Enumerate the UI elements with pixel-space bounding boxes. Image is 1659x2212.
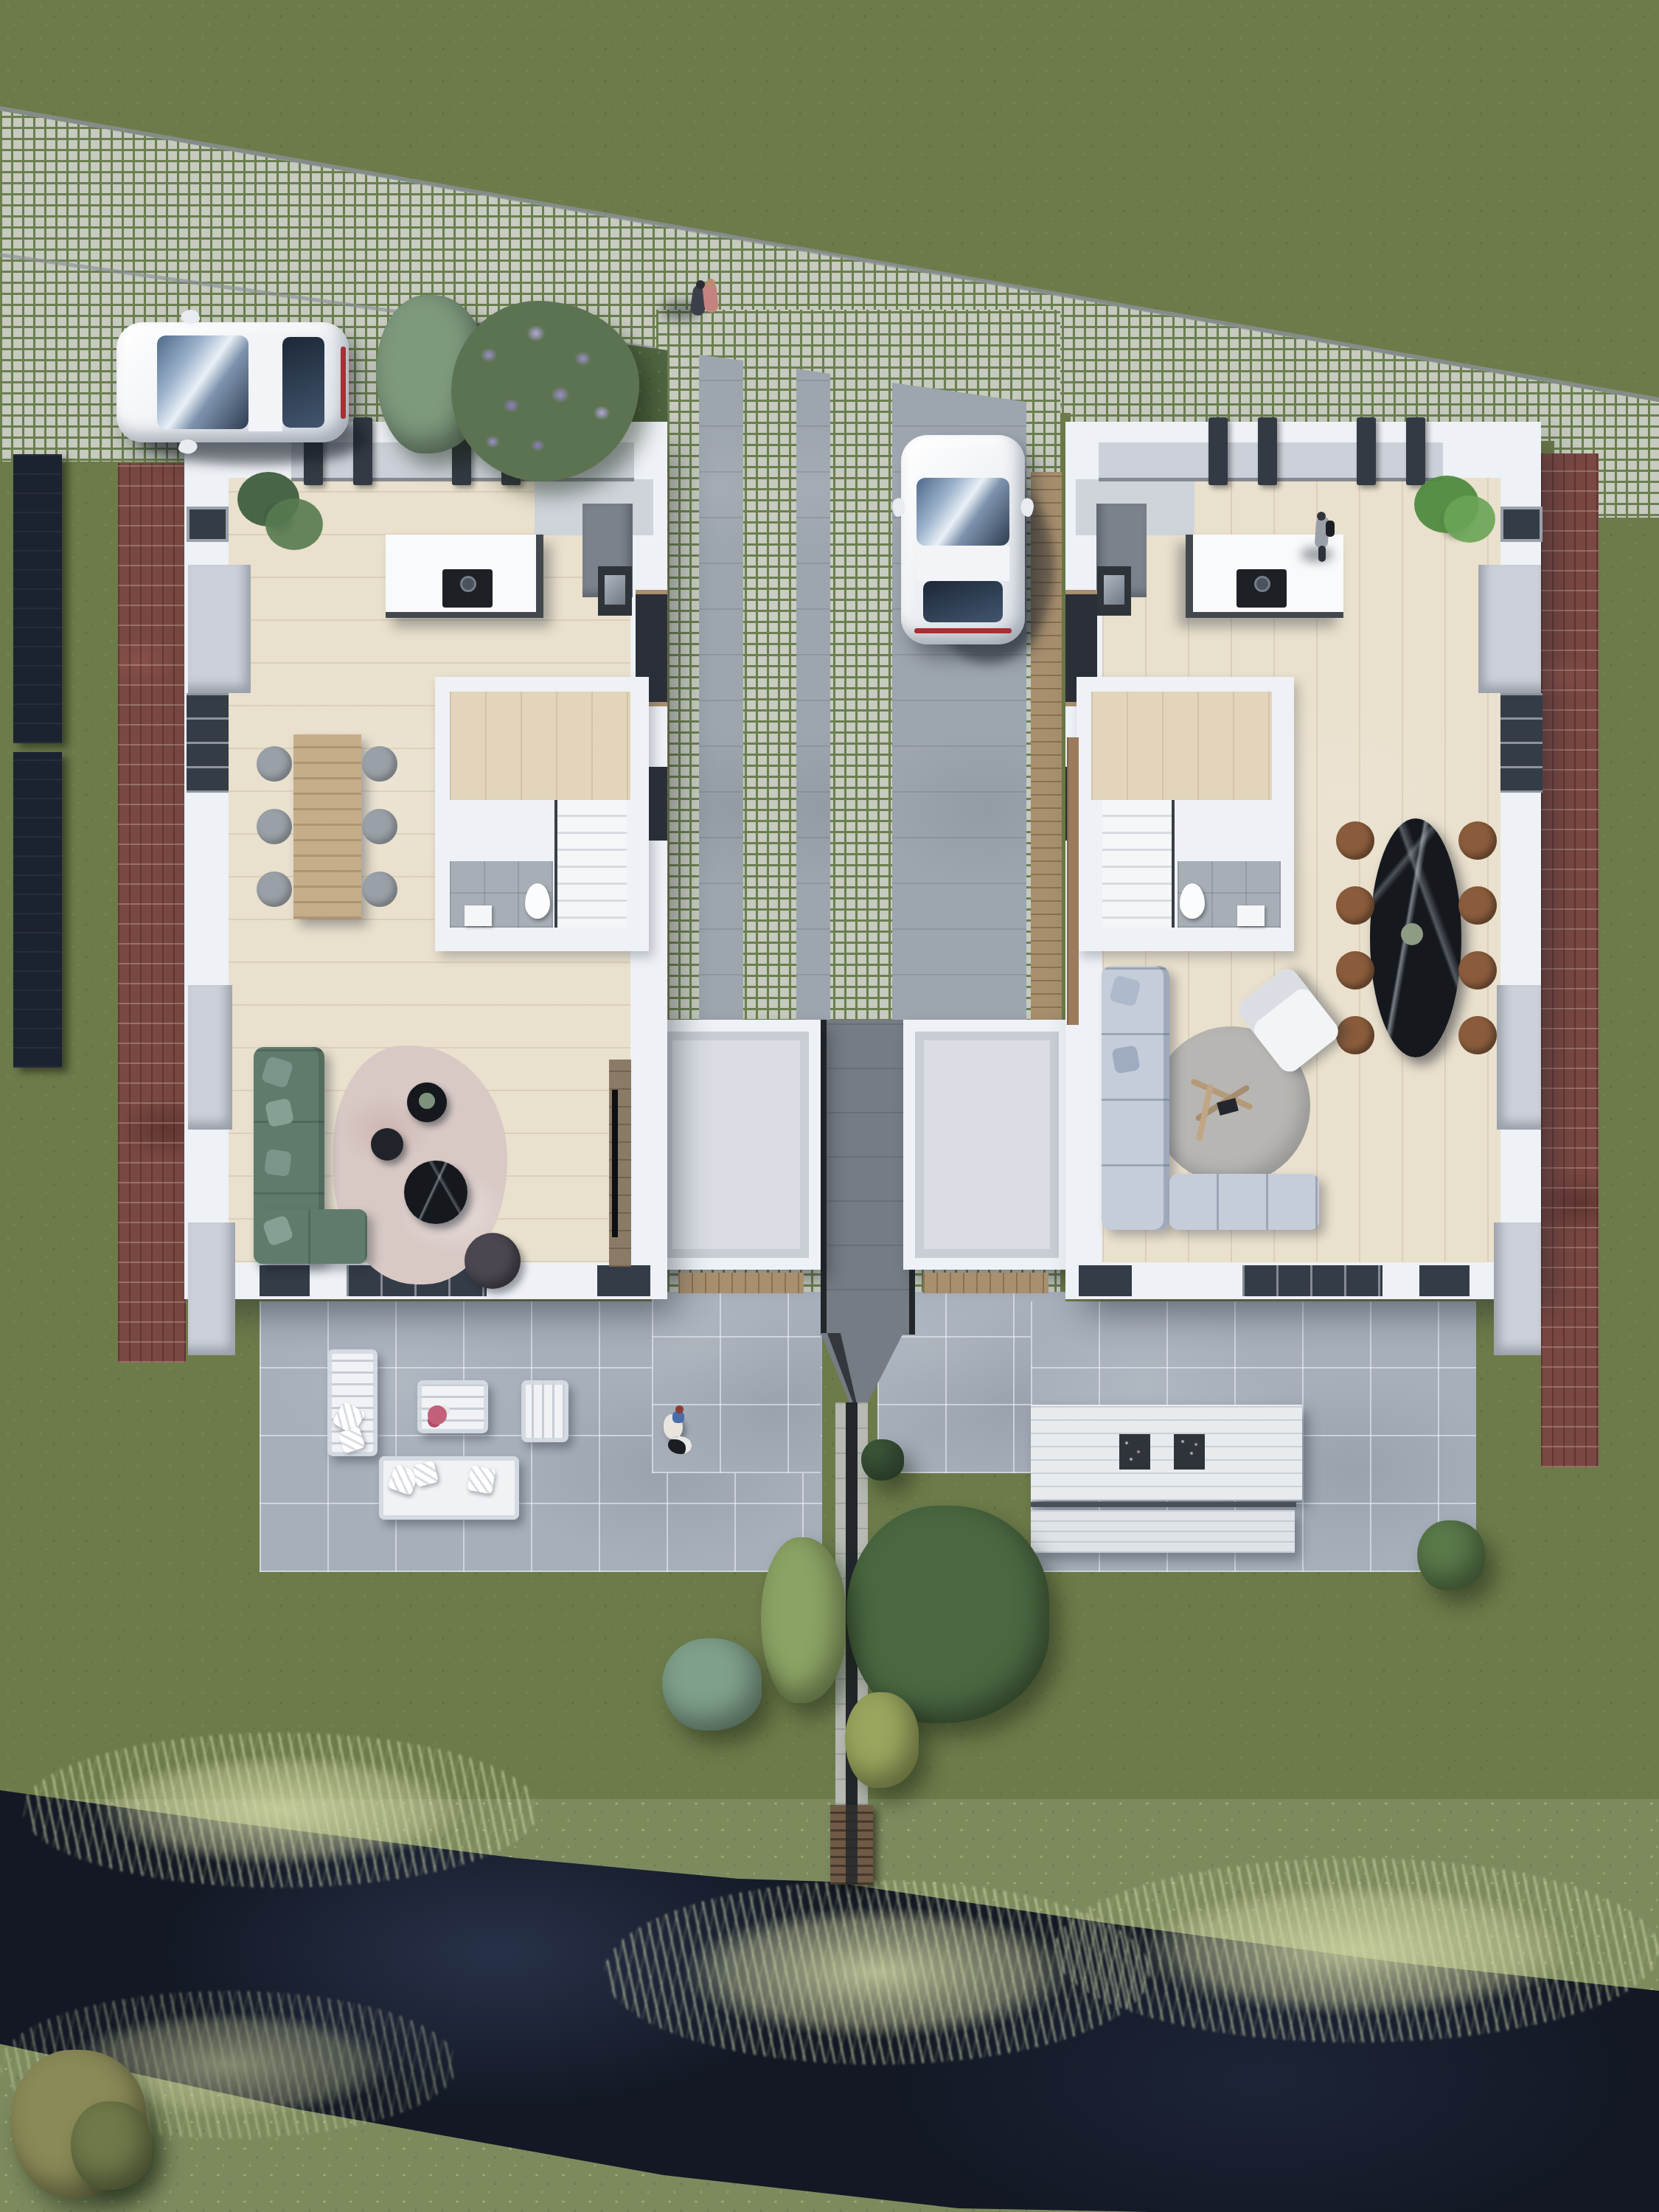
garage-left-roof-inner [672,1040,800,1249]
right-bottom-window-1 [1079,1265,1132,1296]
right-wall-bay-3 [1494,1222,1541,1355]
bush-yellowgreen [845,1692,919,1788]
left-wall-bay-3 [188,1222,235,1355]
right-sink-basin [1104,575,1124,605]
left-toilet [525,883,550,919]
patio-planter-2 [1174,1434,1205,1470]
left-cooktop-burner [460,576,476,592]
patio-table-flowers [428,1405,447,1425]
sedan-roof [917,546,1009,581]
reed-bank-left [22,1733,538,1888]
right-dining-chair-4 [1336,1016,1374,1054]
walker-head [1317,512,1326,521]
patio-chair-white [521,1380,568,1442]
right-dining-chair-2 [1336,886,1374,925]
corner-olive-tree-lobe [71,2101,152,2190]
left-table-plant-dot [419,1093,435,1109]
right-pergola-beam-1 [1208,417,1228,485]
left-dining-chair-3 [257,872,292,907]
left-pouf [465,1233,521,1289]
left-dining-chair-4 [362,746,397,782]
patio-sofa-pillow-3 [467,1465,495,1494]
right-dining-chair-1 [1336,821,1374,860]
footbridge-center [846,1805,858,1885]
bush-bluegreen [662,1638,762,1731]
left-bath-sink [465,905,492,926]
sedan-taillight [914,628,1012,633]
kneeling-head [675,1405,684,1413]
left-wall-glazing [187,693,229,793]
reed-bank-right [1054,1858,1659,2042]
driveway-strip-3 [892,310,1026,1021]
right-wall-glazing [1500,693,1543,793]
right-wall-window-small [1500,507,1543,542]
right-bottom-window-2 [1242,1265,1382,1296]
left-tv-screen [612,1090,618,1237]
right-dining-chair-3 [1336,951,1374,990]
patio-table-gap-shadow [1031,1502,1296,1507]
right-bath-sink [1237,905,1265,926]
fence-dark-left-1 [13,454,62,743]
sedan-windshield [917,478,1009,546]
hatchback-rear-glass [282,337,324,428]
left-palm-leaves-2 [265,498,323,550]
left-dining-table [293,734,361,919]
brick-path-left [118,463,186,1363]
right-dining-chair-7 [1458,951,1497,990]
left-sink-basin [605,575,625,605]
left-wall-window-small [187,507,229,542]
right-plant-leaves-2 [1444,495,1495,543]
left-wall-bay-1 [188,565,251,693]
right-stairs-rail [1172,800,1175,928]
couple-head-2 [706,279,715,288]
fence-dark-left-2 [13,752,62,1068]
left-bottom-window-1 [260,1265,310,1296]
brick-path-right [1541,453,1599,1467]
left-wall-bay-2 [188,985,232,1130]
right-sofa-blue-chaise [1169,1174,1319,1230]
right-sofa-blue-vertical [1102,966,1169,1230]
right-stairs [1102,800,1175,928]
right-bottom-window-3 [1419,1265,1470,1296]
dog [668,1436,692,1454]
hatchback-windshield [157,335,248,429]
left-coffee-table-large [404,1161,467,1224]
couple-head-1 [696,280,705,289]
left-dining-chair-5 [362,809,397,844]
path-between-garages [821,1020,915,1335]
driveway-strip-2 [796,310,830,1021]
hatchback-roof [248,333,282,431]
garage-right-doormat [923,1273,1048,1293]
big-tree-back [846,1506,1049,1723]
right-hall-floor [1091,692,1272,800]
left-dining-chair-2 [257,809,292,844]
right-house-top-wall [1065,422,1541,442]
patio-coffee-table-white [417,1380,488,1433]
left-hall-floor [450,692,630,800]
right-cooktop-burner [1254,576,1270,592]
right-dining-chair-8 [1458,1016,1497,1054]
driveway-strip-1 [699,310,743,1021]
right-wall-bay-2 [1497,985,1541,1130]
left-sofa-pillow-3 [264,1149,292,1177]
left-stairs [554,800,627,928]
patio-long-table [1031,1405,1302,1500]
right-sofa-pillow-2 [1111,1045,1140,1074]
right-table-centerpiece [1401,923,1423,945]
walker-shadow [1301,547,1333,562]
garage-right-roof-inner [924,1040,1050,1249]
right-dining-chair-6 [1458,886,1497,925]
aerial-site-plan [0,0,1659,2212]
right-pergola-beam-3 [1357,417,1376,485]
right-pergola-beam-4 [1406,417,1425,485]
right-toilet [1180,883,1205,919]
left-sofa-pillow-2 [265,1098,294,1127]
left-dining-chair-6 [362,872,397,907]
bush-patio-right [1417,1520,1485,1590]
right-pergola-beam-2 [1258,417,1277,485]
walker-bag [1326,521,1335,537]
left-coffee-table-small-2 [371,1128,403,1161]
light-tree-back [761,1537,846,1703]
round-shrub-walkway [861,1439,904,1481]
left-stairs-rail [554,800,557,928]
garage-left-doormat [678,1273,804,1293]
sedan-rear-glass [923,581,1003,622]
left-bottom-window-3 [597,1265,650,1296]
patio-planter-1 [1119,1434,1150,1470]
left-dining-chair-1 [257,746,292,782]
right-dining-chair-5 [1458,821,1497,860]
walker-legs [1318,546,1326,562]
patio-long-bench [1031,1510,1295,1553]
hatchback-taillight [341,347,346,419]
right-entry-wood-strip [1067,737,1079,1025]
right-wall-bay-1 [1478,565,1541,693]
